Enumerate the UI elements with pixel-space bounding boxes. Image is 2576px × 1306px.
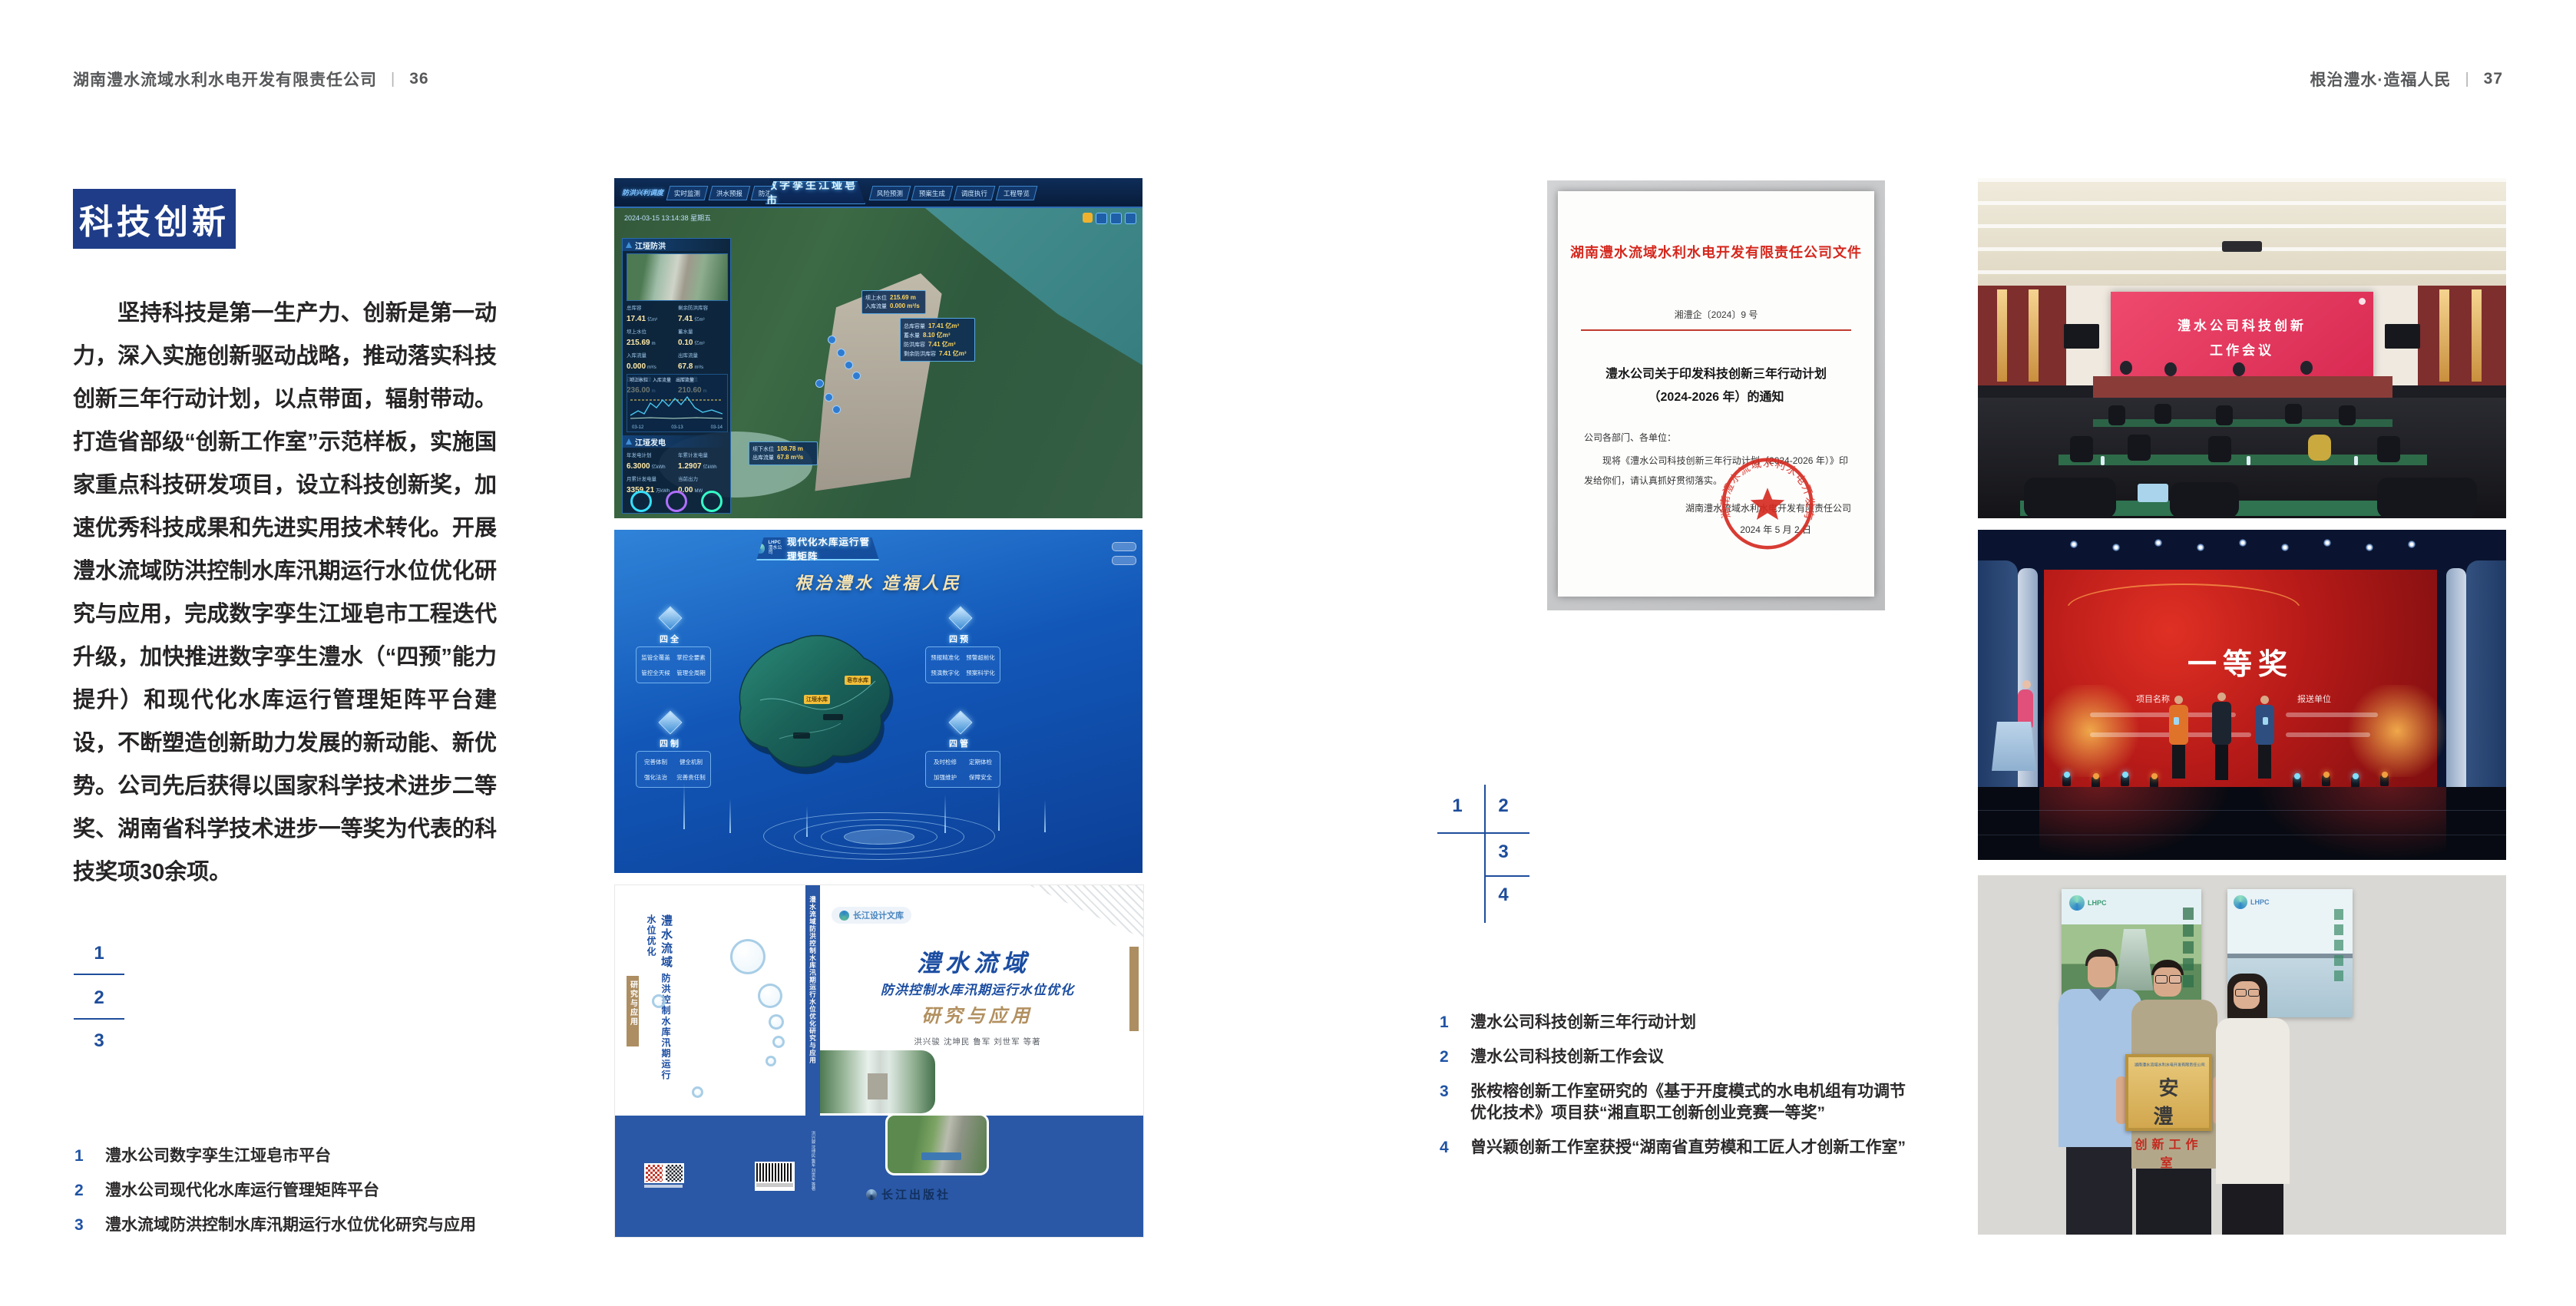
dam-thumbnail-photo <box>627 253 728 301</box>
attendee-silhouette <box>2070 436 2093 462</box>
led-screen: 一等奖 项目名称 报送单位 <box>2044 570 2437 787</box>
dashboard-tab: 工程导览 <box>996 186 1038 200</box>
group-item: 监管全覆盖 <box>641 653 670 662</box>
figure-index-hline <box>1486 875 1529 877</box>
stat-cell: 年累计发电量 1.2907亿kWh <box>678 451 726 472</box>
poster-calligraphy <box>2183 908 2194 992</box>
matrix-title: 现代化水库运行管理矩阵 <box>787 534 879 563</box>
chart-legend: 坝上水位入库流量出库流量 <box>627 375 727 385</box>
person2-pants <box>2136 1169 2211 1235</box>
host-podium <box>1992 722 2036 771</box>
caption-text: 张桉榕创新工作室研究的《基于开度模式的水电机组有功调节优化技术》项目获“湘直职工… <box>1470 1081 1916 1124</box>
lhpc-logo-icon <box>2234 895 2247 909</box>
group-name-siyu: 四预 <box>925 633 994 645</box>
dashboard-timestamp: 2024-03-15 13:14:38 星期五 <box>624 213 711 223</box>
stat-cell: 总库容 17.41亿m³ <box>627 303 675 325</box>
group-item: 管控全天候 <box>641 669 670 677</box>
document-salutation: 公司各部门、各单位： <box>1584 431 1676 444</box>
dashboard-header-bar: 防洪兴利调度 实时监测洪水预报防洪预演 数字孪生江垭皂市 风险预测预案生成调度执… <box>614 178 1143 208</box>
dashboard-corner-label: 防洪兴利调度 <box>622 187 663 197</box>
caption-text: 澧水公司科技创新三年行动计划 <box>1470 1012 1696 1033</box>
group-panel-siguan: 及时检修定期体检加强维护保障安全 <box>925 751 1000 788</box>
chart-x-tick: 03-12 <box>632 425 643 430</box>
map-label-jiangya: 江垭水库 <box>804 695 830 704</box>
header-left: 湖南澧水流域水利水电开发有限责任公司 | 36 <box>73 68 429 91</box>
group-name-sizhi: 四制 <box>636 737 705 749</box>
publisher-block: 长江出版社 <box>866 1186 951 1202</box>
stat-cell: 年发电计划 6.3000亿kWh <box>627 451 675 472</box>
figure-index-4: 4 <box>1488 884 1519 906</box>
figure-index-vline <box>1484 785 1486 923</box>
watershed-map <box>718 616 910 800</box>
back-subtitle2-vertical: 研究与应用 <box>627 980 639 1027</box>
back-tan-bar: 研究与应用 <box>627 976 639 1046</box>
tissue-box <box>2138 484 2168 502</box>
light-pillar <box>683 783 685 829</box>
power-panel-title: 江垭发电 <box>635 436 666 448</box>
locate-icon <box>1110 213 1122 224</box>
stat-unit: m³/s <box>694 365 703 370</box>
wall-tv <box>2064 324 2099 349</box>
figure-index-1: 1 <box>74 943 124 964</box>
panelist-silhouette <box>2120 361 2132 375</box>
series-name: 长江设计文库 <box>853 909 904 921</box>
group-item: 保障安全 <box>969 773 992 782</box>
group-panel-sizhi: 完善体制健全机制强化法治完善责任制 <box>636 751 711 788</box>
chart-legend-item: 入库流量 <box>653 376 671 383</box>
siyu-icon <box>948 606 972 630</box>
stat-unit: 亿m³ <box>694 318 704 322</box>
book-spine: 澧水流域防洪控制水库汛期运行水位优化研究与应用 洪兴骏 沈坤民 鲁军 刘世军 等… <box>805 885 820 1237</box>
chart-legend-item: 坝上水位 <box>630 376 648 383</box>
stat-unit: 亿kWh <box>703 465 717 470</box>
halftone-texture <box>980 885 1143 948</box>
recipient-orange <box>2169 705 2188 745</box>
group-item: 加强维护 <box>934 773 957 782</box>
stat-label: 年累计发电量 <box>678 451 726 458</box>
left-captions: 1 澧水公司数字孪生江垭皂市平台 2 澧水公司现代化水库运行管理矩阵平台 3 澧… <box>74 1146 504 1249</box>
caption-text: 澧水公司科技创新工作会议 <box>1470 1046 1664 1068</box>
group-name-siquan: 四全 <box>636 633 705 645</box>
ceiling-vent <box>2222 241 2262 252</box>
water-droplet <box>769 1014 784 1030</box>
recipient-head <box>2174 696 2183 704</box>
stat-cell: 剩余防洪库容 7.41亿m³ <box>678 303 726 325</box>
light-pillar <box>729 798 731 833</box>
screen-title-line1: 澧水公司科技创新 <box>2111 315 2373 334</box>
figure-index-3: 3 <box>1488 841 1519 863</box>
spotlight <box>2070 541 2078 548</box>
chart-x-axis: 03-1203-1303-14 <box>627 425 727 430</box>
callout-row: 剩余防洪库容7.41 亿m³ <box>904 349 971 358</box>
award-row-text <box>2286 713 2378 717</box>
spine-title: 澧水流域防洪控制水库汛期运行水位优化研究与应用 <box>809 896 818 1126</box>
plaque-name: 安 澧 <box>2128 1073 2209 1129</box>
map-label-small <box>823 714 843 720</box>
dashboard-icon-cluster <box>1083 213 1136 224</box>
spotlight <box>2197 544 2204 551</box>
caption-number: 3 <box>1440 1081 1458 1124</box>
meeting-photo: 澧水公司科技创新 工作会议 <box>1978 178 2506 518</box>
stat-unit: m <box>652 342 656 346</box>
user-icon <box>1083 213 1093 223</box>
water-droplet <box>758 984 782 1008</box>
spotlight <box>2112 544 2120 551</box>
group-panel-siyu: 预报精准化预警超前化预演数字化预案科学化 <box>925 646 1000 683</box>
siguan-icon <box>948 710 972 734</box>
plaque-header: 湖南澧水流域水利水电开发有限责任公司 <box>2135 1062 2203 1068</box>
screen-flare-arc <box>2067 584 2300 633</box>
spotlight <box>2239 539 2247 547</box>
stat-label: 年发电计划 <box>627 451 675 458</box>
person1-face <box>2088 957 2115 987</box>
siquan-icon <box>658 606 682 630</box>
water-bottle <box>2101 456 2105 465</box>
document-number: 湘澧企〔2024〕9 号 <box>1558 308 1874 321</box>
chair-silhouette <box>2154 404 2171 424</box>
stat-value: 67.8 <box>678 362 693 371</box>
document-page: 湖南澧水流域水利水电开发有限责任公司文件 湘澧企〔2024〕9 号 澧水公司关于… <box>1558 191 1874 597</box>
studio-plaque: 湖南澧水流域水利水电开发有限责任公司 安 澧 创新工作室 <box>2125 1054 2212 1131</box>
cover-photo-dam <box>868 1073 888 1099</box>
figure-index-divider <box>74 1018 124 1020</box>
group-name-siguan: 四管 <box>925 737 994 749</box>
light-pillar <box>944 795 946 833</box>
matrix-platform-image: LHPC澧水公司 现代化水库运行管理矩阵 根治澧水 造福人民 皂市水库 江垭水库… <box>614 530 1143 873</box>
recipient-suit <box>2212 702 2231 745</box>
sensor-marker <box>852 372 861 380</box>
changjiang-design-logo-icon <box>839 911 849 921</box>
group-item: 预警超前化 <box>966 653 995 662</box>
sensor-marker <box>837 349 845 357</box>
plaque-subtitle: 创新工作室 <box>2128 1134 2209 1171</box>
powerhouse-roof <box>921 1152 961 1160</box>
stat-label: 坝上水位 <box>627 327 675 335</box>
callout-row: 防洪库容7.41 亿m³ <box>904 340 971 349</box>
caption-number: 2 <box>1440 1046 1458 1068</box>
stat-label: 当前出力 <box>678 474 726 482</box>
wall-tv <box>2385 324 2420 349</box>
panel-logo-icon <box>626 242 632 248</box>
attendee-silhouette <box>2128 435 2151 461</box>
stat-value: 1.2907 <box>678 462 702 471</box>
fullscreen-button <box>1112 542 1136 551</box>
group-item: 预报精准化 <box>931 653 960 662</box>
stat-cell: 蓄水量 0.10亿m³ <box>678 327 726 349</box>
group-item: 定期体检 <box>969 758 992 766</box>
figure-index-divider <box>74 974 124 975</box>
dashboard-title: 数字孪生江垭皂市 <box>766 178 865 208</box>
flood-chart-block: 坝上水位入库流量出库流量 03-1203-1303-14 <box>627 374 728 432</box>
water-droplet <box>766 1056 776 1066</box>
dashboard-left-panel: 江垭防洪 总库容 17.41亿m³ 剩余防洪库容 7.41亿m³ 坝上水位 21… <box>622 238 731 514</box>
power-panel-header: 江垭发电 <box>623 435 730 448</box>
caption-row: 2 澧水公司现代化水库运行管理矩阵平台 <box>74 1180 504 1202</box>
sensor-marker <box>845 361 853 369</box>
chart-x-tick: 03-14 <box>711 425 723 430</box>
caption-number: 1 <box>1440 1012 1458 1033</box>
upstream-callout: 坝上水位215.69 m入库流量0.000 m³/s <box>861 290 926 314</box>
dashboard-tab: 预案生成 <box>911 186 954 200</box>
matrix-slogan: 根治澧水 造福人民 <box>614 570 1143 594</box>
stat-value: 17.41 <box>627 315 646 323</box>
group-item: 掌控全要素 <box>676 653 706 662</box>
foreground-attendee <box>2170 482 2239 518</box>
chair-silhouette <box>2108 405 2125 425</box>
caption-number: 2 <box>74 1180 93 1202</box>
stat-label: 蓄水量 <box>678 327 726 335</box>
series-logo-chip: 长江设计文库 <box>832 907 911 924</box>
company-seal: 湖南澧水流域水利水电开发有限责任公司 <box>1718 454 1817 554</box>
chart-legend-item: 出库流量 <box>676 376 694 383</box>
matrix-title-plate: LHPC澧水公司 现代化水库运行管理矩阵 <box>756 537 879 560</box>
group-item: 及时检修 <box>934 758 957 766</box>
sensor-marker <box>825 393 833 402</box>
caption-row: 2 澧水公司科技创新工作会议 <box>1440 1046 1931 1068</box>
foreground-attendee <box>2024 478 2116 518</box>
dashboard-tab: 实时监测 <box>666 186 709 200</box>
water-bottle <box>2354 456 2358 465</box>
caption-number: 3 <box>74 1215 93 1236</box>
header-separator: | <box>391 71 395 88</box>
dashboard-tab: 风险预测 <box>869 186 911 200</box>
menu-button <box>1112 556 1136 565</box>
cover-photo-valley <box>820 1050 935 1113</box>
document-title-line1: 澧水公司关于印发科技创新三年行动计划 <box>1558 363 1874 382</box>
group-item: 预案科学化 <box>966 669 995 677</box>
gold-glow <box>2029 685 2151 777</box>
stat-label: 月累计发电量 <box>627 474 675 482</box>
stat-label: 出库流量 <box>678 351 726 359</box>
award-row-text <box>2286 732 2370 737</box>
spotlight <box>2366 544 2373 551</box>
person3-glasses <box>2235 989 2247 997</box>
figure-index-hline <box>1437 832 1529 834</box>
slogan-text: 根治澧水·造福人民 <box>2310 68 2451 91</box>
brochure-spread: 湖南澧水流域水利水电开发有限责任公司 | 36 根治澧水·造福人民 | 37 科… <box>0 0 2576 1306</box>
header-right: 根治澧水·造福人民 | 37 <box>2310 68 2503 91</box>
wall-left <box>1978 286 2066 385</box>
caption-row: 1 澧水公司科技创新三年行动计划 <box>1440 1012 1931 1033</box>
section-title: 科技创新 <box>73 189 236 249</box>
water-droplet <box>730 939 766 974</box>
recipient-legs <box>2172 745 2185 779</box>
caption-text: 澧水公司数字孪生江垭皂市平台 <box>105 1146 331 1167</box>
panelist-silhouette <box>2300 361 2313 375</box>
water-level-chart <box>627 385 726 422</box>
chair-silhouette <box>2285 404 2302 424</box>
stat-label: 剩余防洪库容 <box>678 303 726 311</box>
attendee-silhouette <box>2208 436 2231 462</box>
panelist-silhouette <box>2233 362 2245 376</box>
panel-logo-icon <box>626 438 632 445</box>
flood-panel-header: 江垭防洪 <box>623 239 730 251</box>
company-name: 湖南澧水流域水利水电开发有限责任公司 <box>73 68 377 91</box>
capacity-callout: 总库容量17.41 亿m³蓄水量8.10 亿m³防洪库容7.41 亿m³剩余防洪… <box>900 318 975 362</box>
gold-glow <box>2336 685 2459 777</box>
group-item: 强化法治 <box>644 773 667 782</box>
lhpc-logo-text: LHPC澧水公司 <box>769 541 783 556</box>
light-pillar <box>806 806 808 837</box>
attendee-silhouette <box>2377 436 2400 462</box>
book-subtitle: 防洪控制水库汛期运行水位优化 <box>820 979 1135 998</box>
caption-text: 曾兴颖创新工作室获授“湖南省直劳模和工匠人才创新工作室” <box>1470 1137 1906 1159</box>
publisher-name: 长江出版社 <box>881 1186 951 1202</box>
panelist-silhouette <box>2164 362 2177 376</box>
attendee-silhouette-yellow <box>2308 435 2331 461</box>
stage-side-left <box>1978 560 2018 814</box>
sensor-marker <box>828 336 836 344</box>
chair-silhouette <box>2339 405 2356 425</box>
callout-row: 坝上水位215.69 m <box>865 294 922 302</box>
power-stats-grid: 年发电计划 6.3000亿kWh 年累计发电量 1.2907亿kWh 月累计发电… <box>627 451 726 496</box>
body-paragraph: 坚持科技是第一生产力、创新是第一动力，深入实施创新驱动战略，推动落实科技创新三年… <box>73 292 497 894</box>
lhpc-logo-icon <box>2069 895 2085 911</box>
group-item: 预演数字化 <box>931 669 960 677</box>
spotlight <box>2323 539 2331 547</box>
page-number-37: 37 <box>2484 70 2503 88</box>
group-item: 完善责任制 <box>676 773 706 782</box>
caption-text: 澧水公司现代化水库运行管理矩阵平台 <box>105 1180 379 1202</box>
poster-logo-text: LHPC <box>2088 899 2107 907</box>
spine-authors: 洪兴骏 沈坤民 鲁军 刘世军 等著 <box>810 1131 816 1208</box>
callout-row: 坝下水位108.78 m <box>752 445 814 453</box>
stat-label: 总库容 <box>627 303 675 311</box>
sizhi-icon <box>658 710 682 734</box>
settings-icon <box>1125 213 1136 224</box>
sensor-marker <box>832 405 841 414</box>
person1-pants <box>2066 1147 2132 1235</box>
stat-label: 入库流量 <box>627 351 675 359</box>
studio-plaque-photo: LHPC LHPC <box>1978 875 2506 1235</box>
stat-value: 7.41 <box>678 315 693 323</box>
document-title-line2: （2024-2026 年）的通知 <box>1558 386 1874 405</box>
stat-unit: m³/s <box>647 365 656 370</box>
map-label-zaoshi: 皂市水库 <box>845 676 871 685</box>
stat-unit: 亿m³ <box>694 342 704 346</box>
caption-text: 澧水流域防洪控制水库汛期运行水位优化研究与应用 <box>105 1215 476 1236</box>
caption-row: 1 澧水公司数字孪生江垭皂市平台 <box>74 1146 504 1167</box>
caption-number: 1 <box>74 1146 93 1167</box>
cover-photo-dam2 <box>885 1113 989 1175</box>
recipient-head <box>2260 696 2269 704</box>
dashboard-tab: 洪水预报 <box>709 186 751 200</box>
spotlight <box>2281 544 2289 551</box>
qr-caption-line <box>644 1185 683 1188</box>
light-pillar <box>1044 800 1046 832</box>
person2-glasses <box>2155 975 2168 984</box>
figure-index-2: 2 <box>74 987 124 1009</box>
callout-row: 入库流量0.000 m³/s <box>865 303 922 310</box>
poster-calligraphy <box>2334 909 2343 986</box>
dashboard-tab: 调度执行 <box>954 186 996 200</box>
sensor-marker <box>815 379 824 388</box>
book-cover-image: 研究与应用 澧水流域 防洪控制水库汛期运行水位优化 澧水流域防洪控制水库汛期运行 <box>614 884 1144 1238</box>
document-red-header: 湖南澧水流域水利水电开发有限责任公司文件 <box>1558 242 1874 262</box>
book-subtitle2: 研究与应用 <box>820 1000 1135 1027</box>
chair-silhouette <box>2216 405 2233 425</box>
stage-side-right <box>2466 560 2506 814</box>
official-document-image: 湖南澧水流域水利水电开发有限责任公司文件 湘澧企〔2024〕9 号 澧水公司关于… <box>1547 180 1885 610</box>
back-cover: 研究与应用 澧水流域 防洪控制水库汛期运行水位优化 <box>615 885 805 1237</box>
stat-value: 0.10 <box>678 339 693 347</box>
recipient-legs <box>2215 745 2228 780</box>
caption-number: 4 <box>1440 1137 1458 1159</box>
person3-glasses <box>2248 989 2260 997</box>
group-item: 健全机制 <box>680 758 703 766</box>
document-rule <box>1581 329 1851 331</box>
group-item: 管理全周期 <box>676 669 706 677</box>
poster-logo-text: LHPC <box>2250 898 2270 906</box>
barcode <box>755 1162 795 1191</box>
recipient-blue <box>2255 705 2274 745</box>
trophy <box>2263 717 2268 725</box>
screen-logo-dot <box>2359 298 2366 305</box>
stat-cell: 出库流量 67.8m³/s <box>678 351 726 372</box>
dashboard-title-plate: 数字孪生江垭皂市 <box>766 181 865 204</box>
person3-shirt <box>2216 1018 2290 1184</box>
screen-title-line2: 工作会议 <box>2111 339 2373 359</box>
chart-x-tick: 03-13 <box>671 425 683 430</box>
stat-value: 0.000 <box>627 362 646 371</box>
callout-row: 总库容量17.41 亿m³ <box>904 322 971 330</box>
recipient-legs <box>2258 745 2271 779</box>
caption-row: 4 曾兴颖创新工作室获授“湖南省直劳模和工匠人才创新工作室” <box>1440 1137 1931 1159</box>
light-pillar <box>998 783 1000 831</box>
figure-index-1: 1 <box>1442 795 1473 817</box>
award-col2-header: 报送单位 <box>2297 693 2331 705</box>
gauge-unit3-icon <box>701 491 723 512</box>
page-number-36: 36 <box>409 70 428 88</box>
flood-panel-title: 江垭防洪 <box>635 240 666 251</box>
caption-row: 3 张桉榕创新工作室研究的《基于开度模式的水电机组有功调节优化技术》项目获“湘直… <box>1440 1081 1931 1124</box>
recipient-head <box>2217 693 2226 701</box>
stat-value: 6.3000 <box>627 462 650 471</box>
gauge-unit2-icon <box>666 491 687 512</box>
qr-code-dark <box>664 1163 684 1183</box>
group-panel-siquan: 监管全覆盖掌控全要素管控全天候管理全周期 <box>636 646 711 683</box>
stat-unit: 亿m³ <box>647 318 657 322</box>
callout-row: 出库流量67.8 m³/s <box>752 454 814 461</box>
award-headline: 一等奖 <box>2044 640 2437 683</box>
group-item: 完善体制 <box>644 758 667 766</box>
map-label-small <box>793 732 810 739</box>
ceiling <box>1978 178 2506 301</box>
book-authors: 洪兴骏 沈坤民 鲁军 刘世军 等著 <box>820 1036 1135 1047</box>
callout-row: 蓄水量8.10 亿m³ <box>904 331 971 339</box>
generator-gauges <box>630 491 723 512</box>
person2-glasses <box>2169 975 2181 984</box>
trophy <box>2174 717 2179 725</box>
host-head <box>2022 680 2031 689</box>
stat-cell: 入库流量 0.000m³/s <box>627 351 675 372</box>
rostrum-table <box>2093 376 2392 399</box>
water-droplet <box>772 1036 785 1048</box>
base-ring <box>844 829 914 845</box>
water-droplet <box>652 994 666 1008</box>
gauge-unit1-icon <box>630 491 652 512</box>
stat-value: 215.69 <box>627 339 650 347</box>
lhpc-logo-icon <box>756 544 765 554</box>
right-captions: 1 澧水公司科技创新三年行动计划 2 澧水公司科技创新工作会议 3 张桉榕创新工… <box>1440 1012 1931 1172</box>
book-title: 澧水流域 <box>820 944 1127 978</box>
stage-floor <box>1978 787 2506 860</box>
wall-right <box>2418 286 2506 385</box>
figure-index-2: 2 <box>1488 795 1519 817</box>
dashboard-tabs-right: 风险预测预案生成调度执行工程导览 <box>871 186 1040 200</box>
spotlight <box>2154 539 2162 547</box>
water-droplet <box>692 1086 703 1098</box>
